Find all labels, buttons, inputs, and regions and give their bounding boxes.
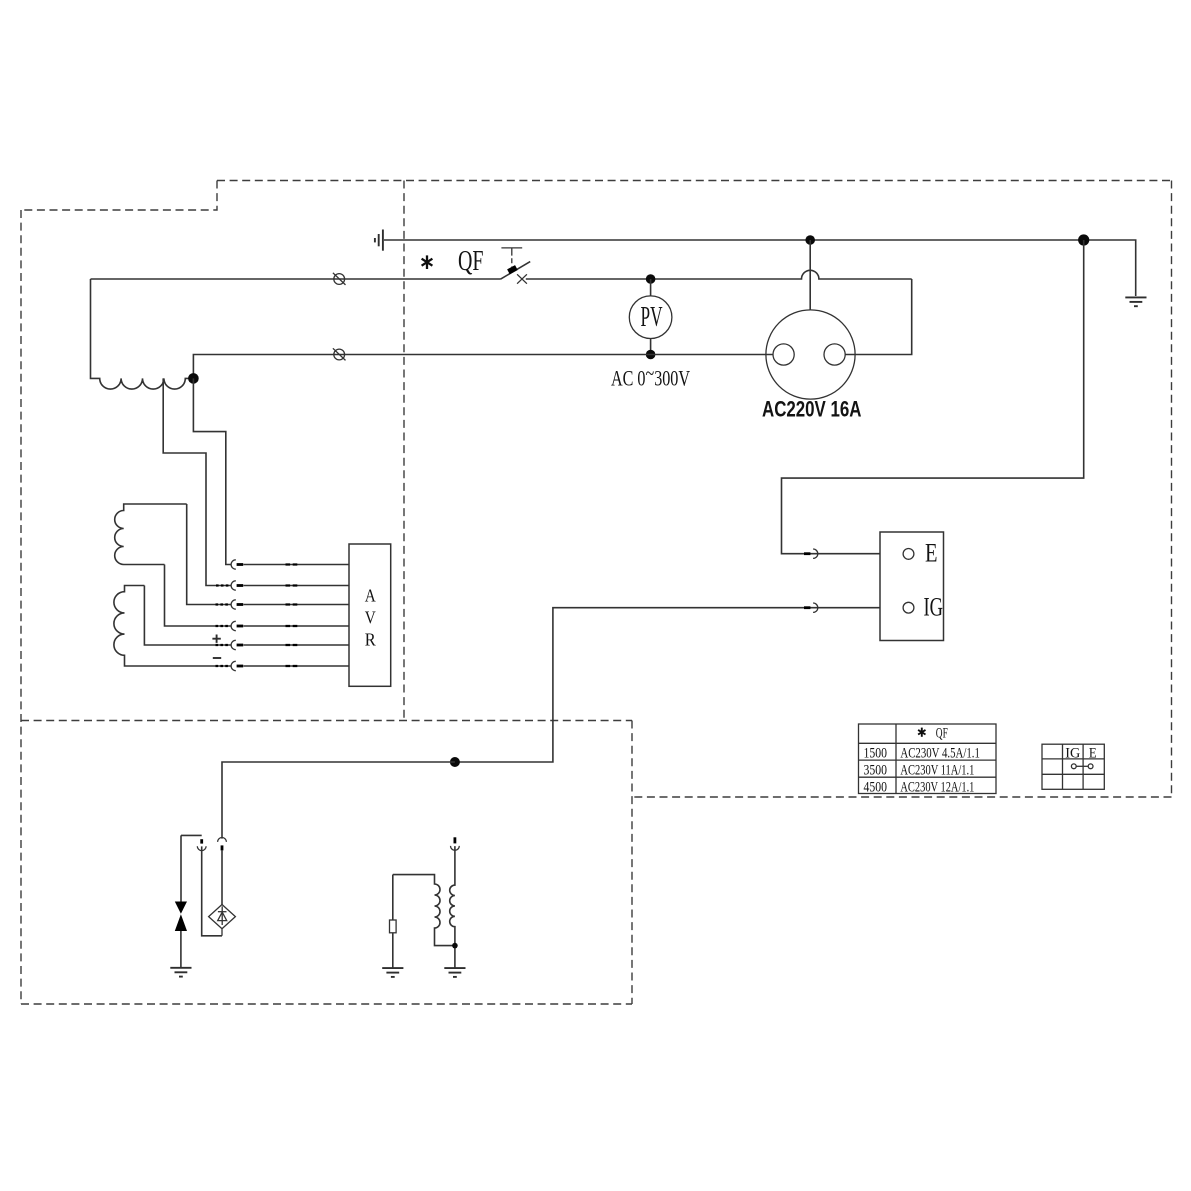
svg-text:4500: 4500 <box>864 780 888 796</box>
svg-text:3500: 3500 <box>864 763 888 779</box>
svg-text:A: A <box>365 585 376 605</box>
svg-text:AC230V 4.5A/1.1: AC230V 4.5A/1.1 <box>900 746 980 762</box>
svg-text:AC230V 12A/1.1: AC230V 12A/1.1 <box>900 780 974 796</box>
svg-text:R: R <box>365 629 376 649</box>
svg-text:V: V <box>365 607 376 627</box>
svg-text:1500: 1500 <box>864 746 888 762</box>
svg-text:IG: IG <box>1065 746 1080 762</box>
svg-text:AC230V 11A/1.1: AC230V 11A/1.1 <box>900 763 974 779</box>
svg-text:QF: QF <box>936 725 948 741</box>
svg-text:AC220V 16A: AC220V 16A <box>762 397 862 422</box>
svg-text:QF: QF <box>458 246 484 277</box>
svg-text:E: E <box>925 539 938 568</box>
svg-text:E: E <box>1089 746 1097 762</box>
svg-text:IG: IG <box>924 592 944 621</box>
svg-text:PV: PV <box>641 302 663 333</box>
